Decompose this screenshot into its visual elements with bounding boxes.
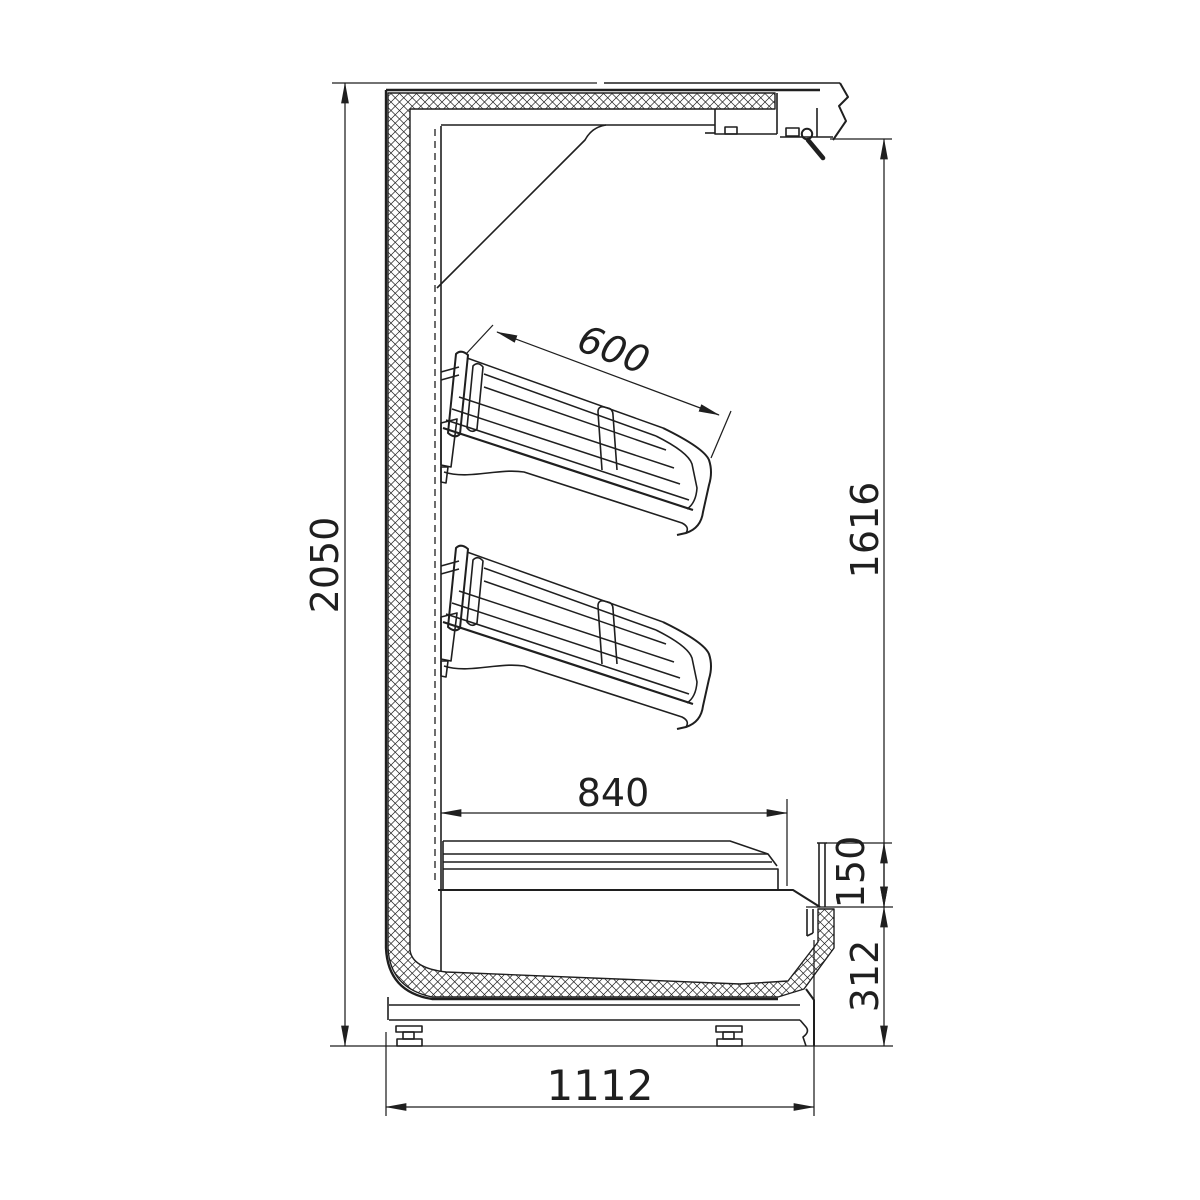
dimension-overall-height [330, 83, 893, 1046]
front-bracket [800, 1020, 807, 1046]
latch-handle [808, 140, 823, 158]
shelf-deck-edge [443, 428, 693, 510]
air-deflector-diagonal [437, 125, 606, 288]
label-base-height: 312 [843, 940, 887, 1013]
leveling-foot-right [716, 1026, 742, 1046]
cabinet-side-section-drawing: 2050 600 1616 840 150 312 1112 [0, 0, 1200, 1200]
canopy-front-profile [833, 83, 848, 140]
shelf-back-rail [467, 364, 483, 432]
technical-drawing-page: 2050 600 1616 840 150 312 1112 [0, 0, 1200, 1200]
interior-lining [435, 125, 715, 971]
wire-shelf-upper [441, 352, 711, 535]
base-platform-top [438, 890, 820, 907]
light-fixture [705, 109, 777, 134]
extension-line-front [711, 411, 731, 458]
front-leg [806, 989, 814, 1046]
bottom-deck [438, 841, 827, 936]
label-shelf-depth: 600 [572, 317, 655, 384]
extension-line-back [466, 325, 493, 354]
label-overall-height: 2050 [303, 517, 347, 614]
label-deck-front-height: 150 [829, 836, 873, 909]
shelf-support-arm [444, 471, 687, 533]
label-base-shelf-depth: 840 [577, 771, 650, 815]
label-inner-height: 1616 [843, 482, 887, 579]
leveling-foot-left [396, 1026, 422, 1046]
shelf-wires [452, 358, 680, 484]
shelf-front-fence-inner [656, 436, 697, 509]
shelf-deck-line [446, 420, 689, 500]
wire-shelf-lower [441, 546, 711, 729]
label-overall-depth: 1112 [547, 1061, 654, 1110]
wall-bracket [441, 367, 459, 483]
